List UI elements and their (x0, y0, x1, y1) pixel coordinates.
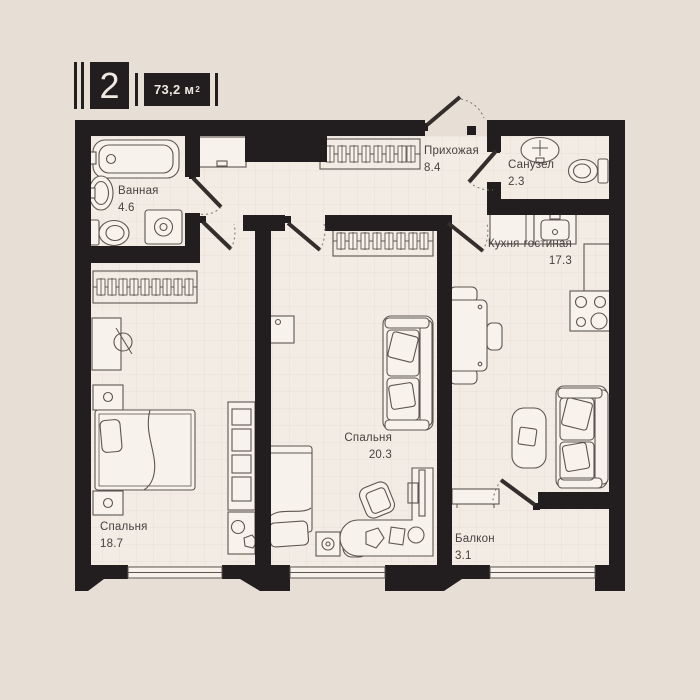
room-area: 20.3 (344, 447, 392, 464)
room-area: 17.3 (488, 253, 572, 270)
plan-header: 2 73,2 м2 (74, 62, 218, 109)
header-bar (81, 62, 84, 109)
floor-plan-page: 2 73,2 м2 (0, 0, 700, 700)
room-area: 2.3 (508, 174, 554, 191)
room-name: Спальня (100, 519, 148, 536)
header-bar (215, 73, 218, 106)
wc-toilet-icon (569, 159, 609, 183)
corner-cabinet (228, 512, 257, 554)
living-sofa-icon (556, 386, 608, 488)
sofa-icon (383, 316, 433, 430)
toilet-icon (89, 220, 129, 246)
header-bar (135, 73, 138, 106)
coffee-table (512, 408, 546, 468)
room-area: 3.1 (455, 548, 495, 565)
double-bed-icon (95, 410, 195, 490)
nightstand (93, 491, 123, 515)
room-label-kitchen-living: Кухня-гостиная 17.3 (488, 236, 572, 271)
wardrobe-closet (228, 402, 255, 510)
total-area-value: 73,2 м (154, 82, 194, 97)
room-label-wc: Санузел 2.3 (508, 157, 554, 192)
room-name: Прихожая (424, 143, 479, 160)
room-name: Ванная (118, 183, 159, 200)
single-bed-icon (266, 446, 312, 547)
total-area-badge: 73,2 м2 (144, 73, 210, 106)
header-bar (74, 62, 77, 109)
floor-number: 2 (99, 68, 119, 104)
windows (128, 567, 595, 578)
room-label-balcony: Балкон 3.1 (455, 531, 495, 566)
room-label-bathroom: Ванная 4.6 (118, 183, 159, 218)
room-area: 18.7 (100, 536, 148, 553)
bathtub-icon (90, 140, 179, 178)
room-name: Кухня-гостиная (488, 236, 572, 253)
room-label-hallway: Прихожая 8.4 (424, 143, 479, 178)
stove-icon (570, 291, 610, 331)
room-area: 4.6 (118, 200, 159, 217)
nightstand (93, 385, 123, 410)
room-area: 8.4 (424, 160, 479, 177)
room-name: Балкон (455, 531, 495, 548)
window-balcony (490, 567, 595, 578)
hall-closet (198, 137, 246, 167)
room-name: Санузел (508, 157, 554, 174)
entrance-door-icon (421, 97, 484, 135)
window-bedroom2 (290, 567, 385, 578)
room-label-bedroom1: Спальня 18.7 (100, 519, 148, 554)
room-label-bedroom2: Спальня 20.3 (344, 430, 392, 465)
nightstand (316, 532, 340, 556)
floor-number-badge: 2 (90, 62, 129, 109)
total-area-sup: 2 (195, 85, 200, 94)
room-name: Спальня (344, 430, 392, 447)
window-bedroom1 (128, 567, 222, 578)
